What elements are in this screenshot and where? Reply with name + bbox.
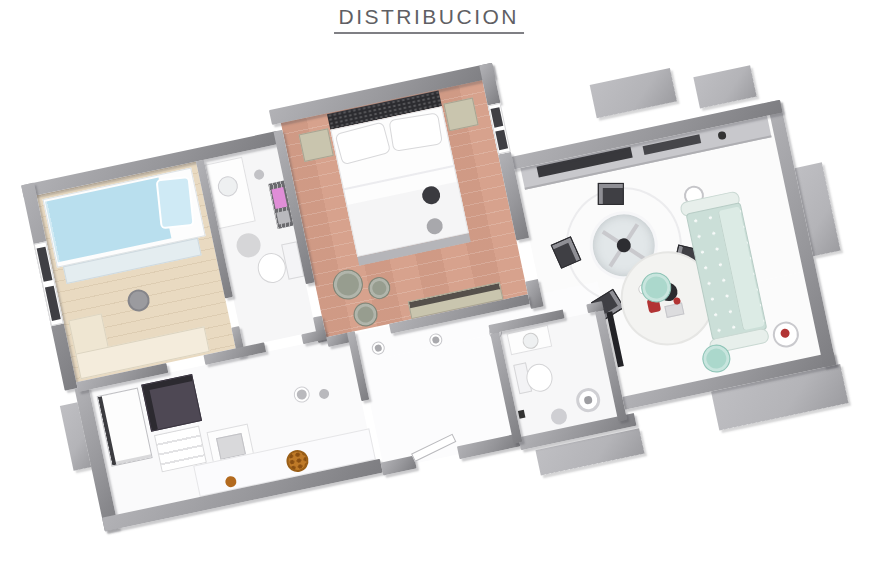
window-pane	[491, 107, 504, 127]
exterior-slab-top-1	[590, 68, 677, 118]
floorplan-3d	[12, 19, 852, 543]
screenshot-canvas: DISTRIBUCION	[0, 0, 869, 584]
dining-chair-1	[598, 183, 624, 205]
window-pane	[495, 130, 508, 150]
single-bed-pillow	[156, 176, 195, 229]
towel-gray	[276, 210, 290, 224]
exterior-slab-top-2	[693, 65, 756, 108]
page-title: DISTRIBUCION	[334, 5, 525, 34]
